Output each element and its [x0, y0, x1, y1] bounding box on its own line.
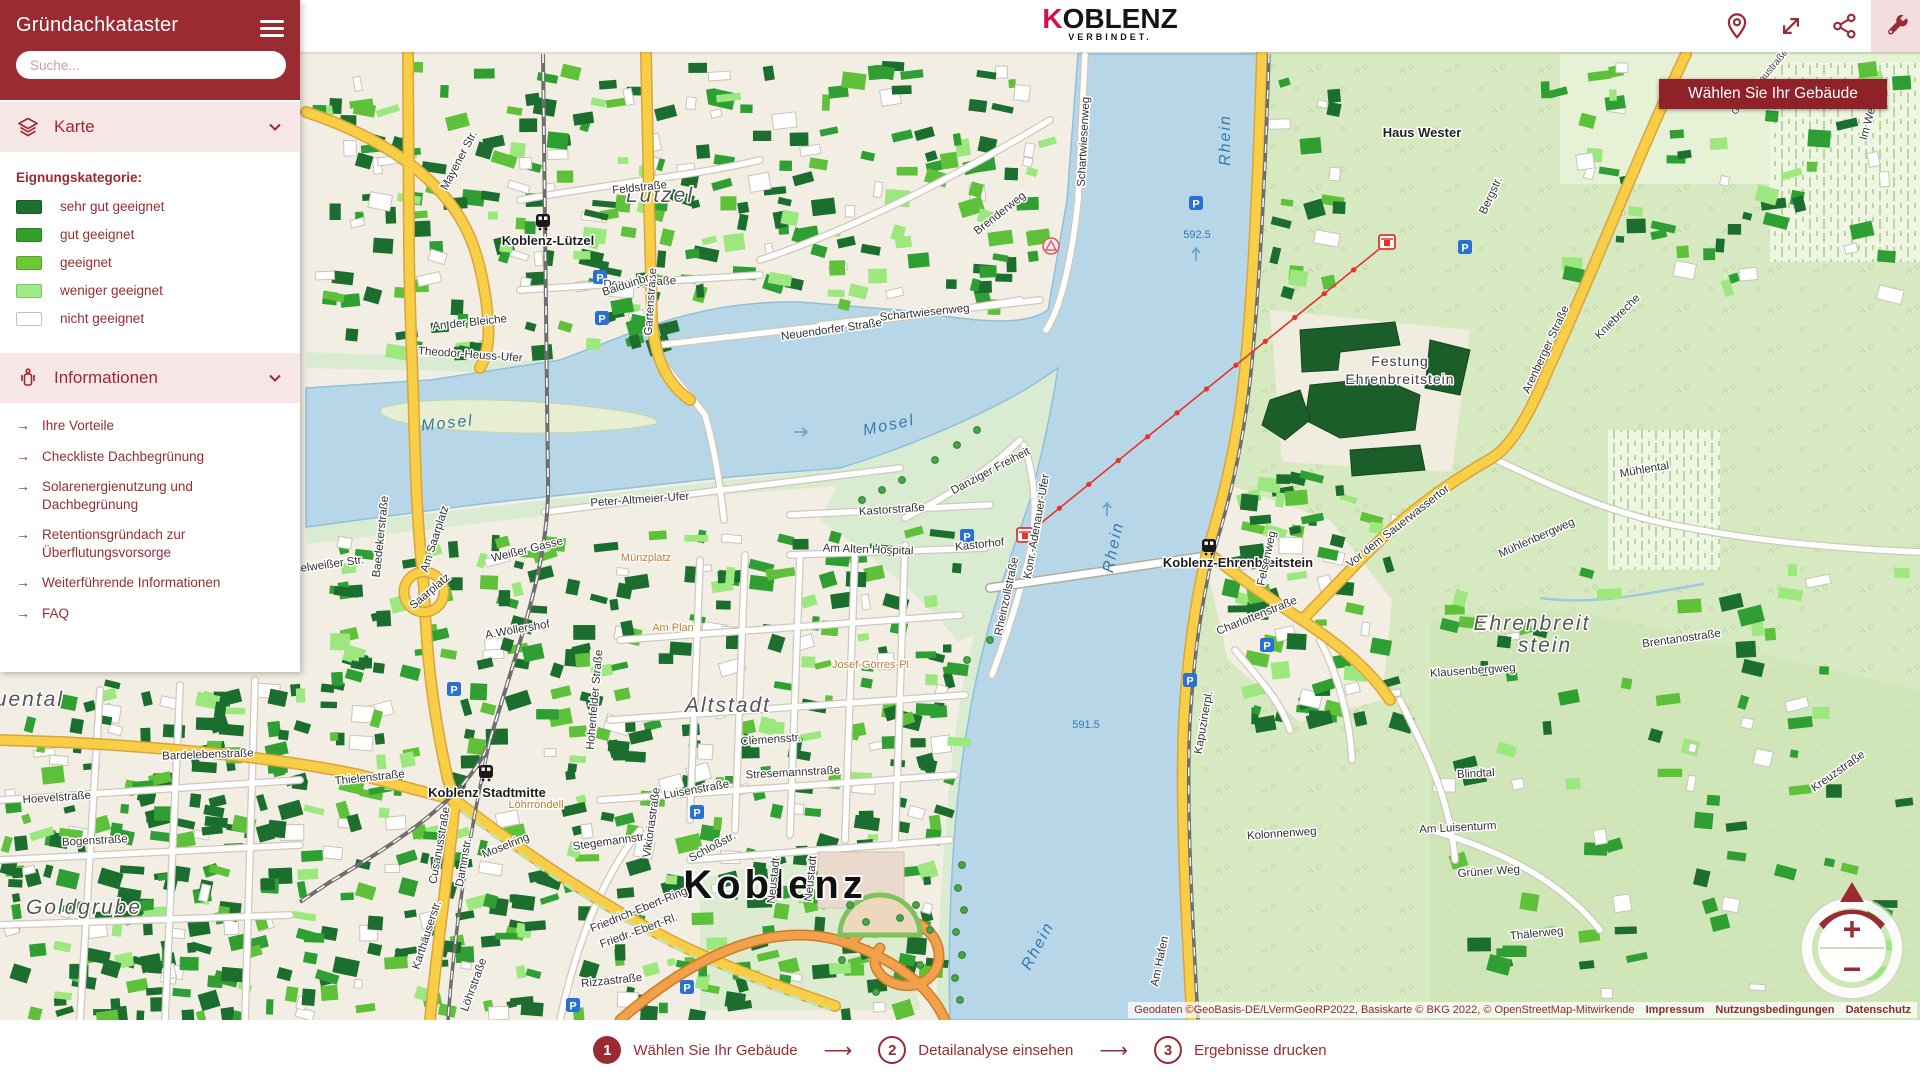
arrow-right-icon: →: [16, 605, 30, 623]
info-link-label: Retentionsgründach zur Überflutungsvorso…: [42, 526, 257, 561]
search-input[interactable]: [16, 51, 286, 79]
step-3-label: Ergebnisse drucken: [1194, 1042, 1327, 1059]
info-link-label: FAQ: [42, 605, 69, 623]
attribution-text: Geodaten ©GeoBasis-DE/LVermGeoRP2022, Ba…: [1134, 1004, 1634, 1016]
compass-north-arrow: [1840, 882, 1864, 902]
section-informationen-label: Informationen: [54, 368, 266, 388]
legend-item: geeignet: [16, 255, 284, 270]
svg-text:P: P: [450, 685, 457, 697]
info-link-label: Solarenergienutzung und Dachbegrünung: [42, 478, 257, 513]
map-label: Goldgrube: [26, 896, 142, 919]
svg-text:P: P: [683, 983, 690, 995]
step-2-label: Detailanalyse einsehen: [918, 1042, 1073, 1059]
top-bar: KOBLENZ VERBINDET.: [300, 0, 1920, 52]
layers-icon: [16, 115, 40, 139]
legend-item: sehr gut geeignet: [16, 199, 284, 214]
map-label: Altstadt: [683, 694, 771, 717]
map-label: Ehrenbreit: [1474, 612, 1591, 635]
sidebar: Gründachkataster Karte Eignungskategorie…: [0, 0, 300, 672]
legend-swatch: [16, 256, 42, 270]
info-link-label: Checkliste Dachbegrünung: [42, 448, 204, 466]
app-screen: PPPPPPPPPPP KoblenzLützelAltstadtEhrenbr…: [0, 0, 1920, 1080]
legend-label: gut geeignet: [60, 227, 134, 242]
step-3-number: 3: [1154, 1036, 1182, 1064]
svg-text:P: P: [1263, 641, 1270, 653]
legend-label: geeignet: [60, 255, 112, 270]
info-link[interactable]: →Ihre Vorteile: [16, 417, 284, 435]
svg-text:P: P: [1186, 676, 1193, 688]
map-label: Rhein: [1217, 114, 1234, 166]
chevron-down-icon: [266, 369, 284, 387]
info-link[interactable]: →Solarenergienutzung und Dachbegrünung: [16, 478, 284, 513]
map-label: Blindtal: [1457, 767, 1495, 781]
zoom-compass-svg: + −: [1796, 880, 1908, 1004]
parking-icon: P: [1189, 196, 1203, 211]
map-label: stein: [1518, 634, 1572, 657]
locate-icon[interactable]: [1722, 11, 1752, 41]
select-building-tooltip: Wählen Sie Ihr Gebäude: [1659, 79, 1887, 109]
arrow-right-icon: →: [16, 574, 30, 592]
svg-text:P: P: [598, 314, 605, 326]
parking-icon: P: [690, 805, 704, 820]
map-attribution: Geodaten ©GeoBasis-DE/LVermGeoRP2022, Ba…: [1128, 1002, 1917, 1018]
legend-item: gut geeignet: [16, 227, 284, 242]
legend-label: nicht geeignet: [60, 311, 144, 326]
zoom-compass-control[interactable]: + −: [1796, 880, 1908, 1009]
step-1[interactable]: 1 Wählen Sie Ihr Gebäude: [593, 1036, 797, 1064]
zoom-out-button[interactable]: −: [1843, 951, 1862, 987]
map-label: Festung: [1371, 353, 1429, 369]
section-karte[interactable]: Karte: [0, 102, 300, 152]
info-link[interactable]: →FAQ: [16, 605, 284, 623]
nutzungsbedingungen-link[interactable]: Nutzungsbedingungen: [1715, 1004, 1834, 1016]
step-2-number: 2: [878, 1036, 906, 1064]
legend-items: sehr gut geeignetgut geeignetgeeignetwen…: [16, 199, 284, 326]
info-link[interactable]: →Weiterführende Informationen: [16, 574, 284, 592]
zoom-in-button[interactable]: +: [1843, 911, 1862, 947]
parking-icon: P: [1260, 638, 1274, 653]
step-arrow-icon: ⟶: [824, 1038, 853, 1063]
step-2[interactable]: 2 Detailanalyse einsehen: [878, 1036, 1073, 1064]
step-1-number: 1: [593, 1036, 621, 1064]
map-label: Münzplatz: [621, 552, 671, 564]
share-icon[interactable]: [1830, 11, 1860, 41]
logo-k: K: [1042, 3, 1062, 34]
bottom-stepper-bar: 1 Wählen Sie Ihr Gebäude ⟶ 2 Detailanaly…: [0, 1020, 1920, 1080]
legend-swatch: [16, 200, 42, 214]
svg-text:P: P: [569, 1001, 576, 1013]
map-label: Löhrrondell: [508, 799, 563, 811]
tools-button[interactable]: [1871, 0, 1920, 52]
legend-swatch: [16, 228, 42, 242]
arrow-right-icon: →: [16, 478, 30, 513]
legend: Eignungskategorie: sehr gut geeignetgut …: [0, 152, 300, 345]
fullscreen-icon[interactable]: [1776, 11, 1806, 41]
wrench-icon: [1882, 12, 1910, 40]
step-3[interactable]: 3 Ergebnisse drucken: [1154, 1036, 1327, 1064]
parking-icon: P: [1183, 673, 1197, 688]
info-link[interactable]: →Checkliste Dachbegrünung: [16, 448, 284, 466]
map-label: Ehrenbreitstein: [1345, 371, 1454, 387]
toolbar-icons: [1722, 0, 1860, 52]
logo-text: OBLENZ: [1063, 3, 1178, 34]
map-label: Koblenz Stadtmitte: [428, 785, 546, 800]
logo-subtitle: VERBINDET.: [960, 32, 1260, 42]
chevron-down-icon: [266, 118, 284, 136]
arrow-right-icon: →: [16, 526, 30, 561]
map-label: Haus Wester: [1383, 125, 1462, 140]
parking-icon: P: [595, 311, 609, 326]
impressum-link[interactable]: Impressum: [1646, 1004, 1705, 1016]
datenschutz-link[interactable]: Datenschutz: [1846, 1004, 1911, 1016]
attraction-icon: [1043, 238, 1059, 254]
sidebar-header: Gründachkataster: [0, 0, 300, 100]
step-1-label: Wählen Sie Ihr Gebäude: [633, 1042, 797, 1059]
legend-item: weniger geeignet: [16, 283, 284, 298]
arrow-right-icon: →: [16, 448, 30, 466]
koblenz-logo: KOBLENZ VERBINDET.: [960, 4, 1260, 42]
section-karte-label: Karte: [54, 117, 266, 137]
info-links: →Ihre Vorteile→Checkliste Dachbegrünung→…: [0, 403, 300, 649]
app-title: Gründachkataster: [16, 14, 284, 37]
section-informationen[interactable]: Informationen: [0, 353, 300, 403]
map-label: Koblenz-Lützel: [502, 233, 594, 248]
info-icon: [16, 366, 40, 390]
map-label: Josef-Görres-Pl.: [832, 659, 912, 671]
map-label: Koblenz-Ehrenbreitstein: [1163, 555, 1313, 570]
map-label: Am Plan: [652, 622, 694, 634]
parking-icon: P: [680, 980, 694, 995]
info-link-label: Weiterführende Informationen: [42, 574, 220, 592]
arrow-right-icon: →: [16, 417, 30, 435]
cable-car-station-icon: [1379, 235, 1395, 249]
info-link[interactable]: →Retentionsgründach zur Überflutungsvors…: [16, 526, 284, 561]
info-link-label: Ihre Vorteile: [42, 417, 114, 435]
map-label: Rauental: [0, 688, 64, 711]
menu-icon[interactable]: [260, 16, 284, 41]
svg-text:P: P: [1461, 243, 1468, 255]
legend-label: weniger geeignet: [60, 283, 163, 298]
svg-text:P: P: [1192, 199, 1199, 211]
map-label: 591.5: [1072, 719, 1100, 731]
legend-swatch: [16, 284, 42, 298]
legend-swatch: [16, 312, 42, 326]
svg-text:P: P: [693, 808, 700, 820]
legend-item: nicht geeignet: [16, 311, 284, 326]
parking-icon: P: [447, 682, 461, 697]
map-label: 592.5: [1183, 229, 1211, 241]
legend-title: Eignungskategorie:: [16, 170, 284, 185]
step-arrow-icon: ⟶: [1099, 1038, 1128, 1063]
parking-icon: P: [566, 998, 580, 1013]
parking-icon: P: [1458, 240, 1472, 255]
legend-label: sehr gut geeignet: [60, 199, 164, 214]
